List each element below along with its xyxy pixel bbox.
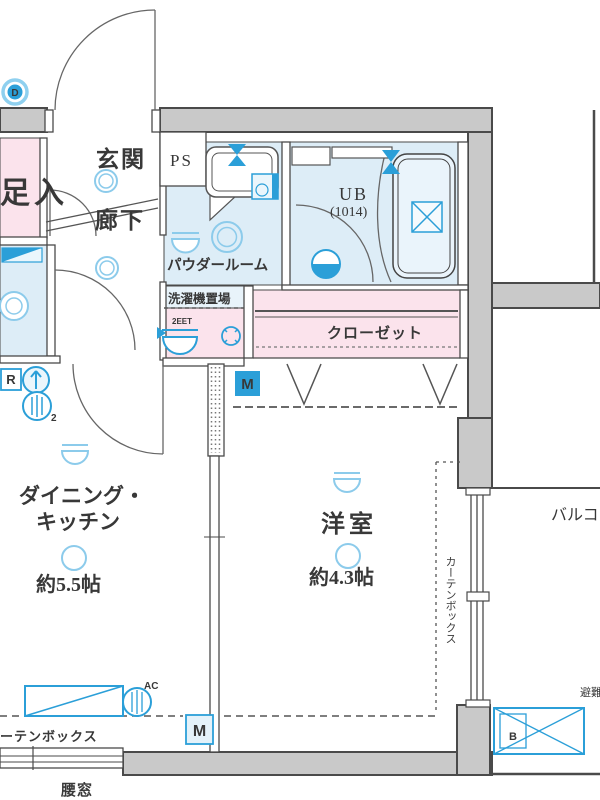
closet-label: クローゼット (327, 324, 423, 342)
doorbell-label: D (11, 88, 18, 99)
water-heater-unit (272, 174, 278, 199)
curtain-box-bottom-label: カーテンボックス (0, 729, 98, 744)
unit-bath-label: UB (339, 184, 368, 204)
meter2-sub: 2 (51, 413, 57, 424)
door-jamb (152, 110, 160, 132)
wall-bottom (123, 752, 492, 775)
wall (460, 290, 468, 358)
powder-room-label: パウダールーム (167, 256, 268, 274)
closet-room (253, 290, 460, 358)
bath-counter (292, 147, 330, 165)
hatch-b-label: B (509, 731, 517, 743)
partition-hatched (208, 364, 224, 456)
wall (282, 142, 290, 288)
wall (47, 245, 55, 356)
dk-area-label: 約5.5帖 (36, 572, 101, 596)
window-frame (466, 700, 490, 707)
door-jamb (45, 110, 53, 132)
pillar-right (458, 418, 492, 488)
pipe-space-label: PS (170, 151, 193, 170)
evacuation-hatch (494, 708, 584, 754)
dk-label-line2: キッチン (36, 510, 120, 534)
wall (0, 356, 60, 363)
bath-counter (332, 147, 392, 158)
western-area-label: 約4.3帖 (309, 565, 374, 589)
window-sash (467, 592, 489, 601)
wall (244, 286, 253, 358)
wall-top-left (0, 108, 47, 132)
wall (282, 285, 468, 290)
meter-m-bottom-label: M (193, 723, 206, 740)
genkan-label: 玄関 (96, 146, 146, 172)
meter-r-label: R (6, 372, 16, 387)
window-frame (466, 488, 490, 495)
balcony-label: バルコニー (551, 507, 600, 524)
ac-label: AC (144, 681, 158, 692)
wall (163, 358, 244, 366)
pillar-bottom-right (457, 705, 490, 775)
waist-window-label: 腰窓 (60, 781, 93, 799)
wall (0, 237, 47, 245)
dk-label-line1: ダイニング・ (19, 484, 145, 508)
hallway-label: 廊下 (95, 207, 145, 233)
unit-bath-size: (1014) (330, 205, 368, 220)
wall-top (160, 108, 492, 132)
wall-right (468, 132, 492, 418)
ac-unit (25, 686, 151, 716)
laundry-label: 洗濯機置場 (168, 291, 231, 306)
laundry-pan-code: 2EET (172, 317, 192, 326)
toilet-bowl-icon (0, 292, 28, 320)
partition-dk-western (210, 456, 219, 752)
curtain-box-side-label: カーテンボックス (444, 556, 457, 644)
waist-window (0, 748, 123, 768)
wall (458, 142, 468, 285)
wall-band-right (492, 283, 600, 308)
evacuation-hatch-label: 避難ハッチ (580, 685, 600, 699)
shoe-storage-label: 下足入 (0, 177, 68, 210)
western-room-label: 洋室 (321, 510, 377, 538)
floor-plan-svg: D R 2 M M B AC 2EET 玄関 廊下 下足入 PS パウダールーム… (0, 0, 600, 800)
meter-m-closet-label: M (241, 376, 254, 393)
wall (160, 282, 166, 360)
floor-plan: D R 2 M M B AC 2EET 玄関 廊下 下足入 PS パウダールーム… (0, 0, 600, 800)
